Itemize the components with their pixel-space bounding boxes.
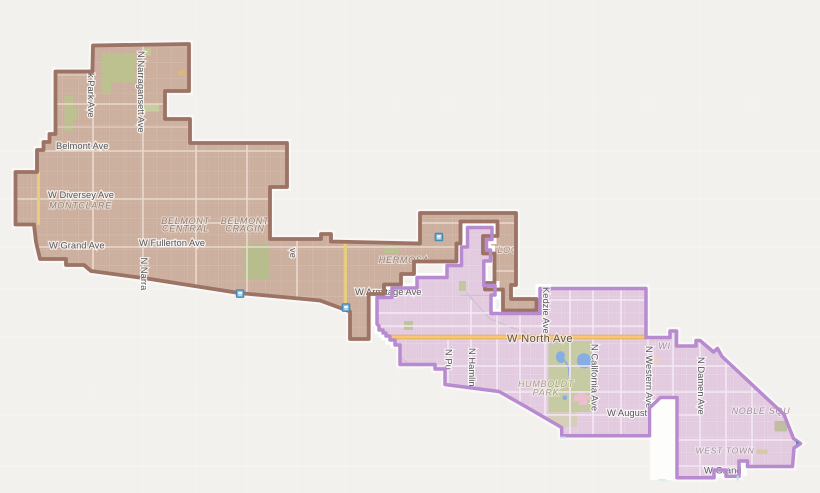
svg-text:N Pu: N Pu [443, 349, 454, 370]
svg-text:CENTRAL: CENTRAL [162, 224, 209, 234]
svg-text:W Grand Ave: W Grand Ave [49, 240, 105, 251]
svg-text:N Western Ave: N Western Ave [644, 346, 655, 408]
svg-text:ve: ve [288, 248, 299, 258]
svg-text:N Hamlin: N Hamlin [467, 348, 478, 387]
svg-text:WEST TOWN: WEST TOWN [695, 446, 754, 456]
svg-text:CRAGIN: CRAGIN [225, 224, 264, 234]
svg-text:W North Ave: W North Ave [507, 333, 573, 345]
svg-text:Belmont Ave: Belmont Ave [56, 140, 108, 151]
svg-text:W Diversey Ave: W Diversey Ave [48, 189, 114, 200]
svg-text:Kedzie Ave: Kedzie Ave [541, 287, 552, 334]
svg-text:WI: WI [658, 341, 670, 351]
svg-text:W August: W August [607, 407, 648, 418]
svg-text:N Damen Ave: N Damen Ave [696, 357, 707, 415]
svg-text:PARK: PARK [533, 388, 560, 398]
svg-text:k Park Ave: k Park Ave [86, 73, 97, 118]
svg-text:N Narragansett Ave: N Narragansett Ave [136, 51, 147, 133]
svg-text:MONTCLARE: MONTCLARE [49, 201, 112, 211]
svg-text:W Fullerton Ave: W Fullerton Ave [139, 237, 205, 248]
svg-text:N Narra: N Narra [139, 258, 150, 292]
svg-text:N California Ave: N California Ave [589, 344, 600, 411]
